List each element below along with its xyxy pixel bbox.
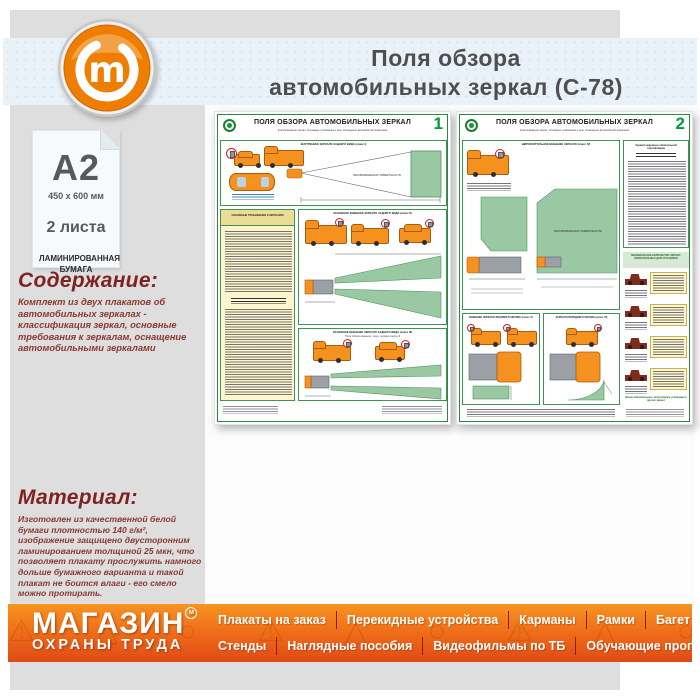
mirror-callout-icon [343,339,352,348]
content-section: Содержание: Комплект из двух плакатов об… [18,269,198,355]
menu-item-visual-aids[interactable]: Наглядные пособия [276,637,422,655]
mirror-callout-icon [401,340,410,349]
poster-2-thumbnail: ПОЛЯ ОБЗОРА АВТОМОБИЛЬНЫХ ЗЕРКАЛ Классиф… [456,111,693,425]
poster-emblem-icon [223,119,236,132]
wide-angle-diagram-left [465,195,529,307]
info-column: Зеркала наружные обязательной сертификац… [623,140,689,406]
store-logo-line2: ОХРАНЫ ТРУДА [32,637,197,653]
class6-heading: ЗЕРКАЛО ПЕРЕДНЕГО ОБЗОРА (класс VI) [546,316,617,319]
micro-text [625,354,647,362]
menu-item-training-programs[interactable]: Обучающие программы [575,637,692,655]
copyright-micro-text [382,406,442,414]
mirror-callout-icon [335,218,344,227]
class3-section: ОСНОВНОЕ ВНЕШНЕЕ ЗЕРКАЛО ЗАДНЕГО ВИДА (к… [298,328,447,401]
paper-format-card: А2 450 х 600 мм 2 листа ЛАМИНИРОВАННАЯ Б… [32,130,120,268]
menu-item-flip-devices[interactable]: Перекидные устройства [336,611,508,629]
footer-menu-row1: Плакаты на заказ Перекидные устройства К… [208,611,688,629]
poster-1-header: ПОЛЯ ОБЗОРА АВТОМОБИЛЬНЫХ ЗЕРКАЛ Классиф… [219,116,446,139]
min-mirrors-heading: МИНИМАЛЬНОЕ КОЛИЧЕСТВО ЗЕРКАЛ, ОБЯЗАТЕЛЬ… [623,252,689,268]
truck-icon [625,338,647,349]
sheet-count: 2 листа [33,219,119,237]
requirements-heading: ОСНОВНЫЕ ТРЕБОВАНИЯ К ЗЕРКАЛАМ [221,210,294,226]
wide-angle-diagram-right: ОБОЗРЕВАЕМАЯ ПОВЕРХНОСТЬ [533,187,619,307]
micro-text [625,322,647,330]
product-page: m Поля обзора автомобильных зеркал (С-78… [0,0,700,700]
menu-item-frames[interactable]: Рамки [586,611,645,629]
micro-caption [467,183,511,191]
side-view-zone-diagram [467,350,537,402]
footer-menu-row2: Стенды Наглядные пособия Видеофильмы по … [208,637,688,655]
surface-label: ОБОЗРЕВАЕМАЯ ПОВЕРХНОСТЬ [554,229,603,233]
mirror-rule-box [650,336,687,358]
class2-heading: ОСНОВНОЕ ВНЕШНЕЕ ЗЕРКАЛО ЗАДНЕГО ВИДА (к… [301,212,444,215]
trademark-icon: м [185,607,197,619]
class6-section: ЗЕРКАЛО ПЕРЕДНЕГО ОБЗОРА (класс VI) [543,313,620,405]
m-circle-logo-icon: m [57,18,157,118]
mirror-callout-icon [381,219,390,228]
page-title-line1: Поля обзора [200,44,692,73]
class1-section: ВНУТРЕННЕЕ ЗЕРКАЛО ЗАДНЕГО ВИДА (класс I… [220,140,447,206]
mirror-callout-icon [594,324,602,332]
content-text: Комплект из двух плакатов об автомобильн… [18,297,198,355]
class5-heading: ВНЕШНЕЕ ЗЕРКАЛО БОКОВОГО ОБЗОРА (класс V… [465,316,537,319]
truck-illustration [471,331,501,345]
car-top-view [229,173,275,191]
content-heading: Содержание: [18,269,198,293]
micro-subheading [231,298,286,304]
class3-note: Поля обзора меньше, чем у зеркал класса … [301,335,444,338]
poster-2-number: 2 [676,114,685,134]
front-view-zone-diagram [548,350,617,402]
brand-logo[interactable]: m [57,18,157,118]
micro-text [225,231,292,293]
menu-item-pockets[interactable]: Карманы [508,611,585,629]
store-logo-line1: МАГАЗИНм [32,609,197,639]
micro-text [625,386,647,394]
material-heading: Материал: [18,486,206,510]
class3-heading: ОСНОВНОЕ ВНЕШНЕЕ ЗЕРКАЛО ЗАДНЕГО ВИДА (к… [301,331,444,334]
micro-text [628,161,686,245]
certification-box: Зеркала наружные обязательной сертификац… [623,140,689,248]
sedan-icon [625,274,647,285]
mirror-callout-icon [503,324,511,332]
class5-section: ВНЕШНЕЕ ЗЕРКАЛО БОКОВОГО ОБЗОРА (класс V… [462,313,540,405]
truck-illustration [305,225,347,244]
menu-item-baguette[interactable]: Багет [645,611,692,629]
material-section: Материал: Изготовлен из качественной бел… [18,486,206,599]
requirements-column: ОСНОВНЫЕ ТРЕБОВАНИЯ К ЗЕРКАЛАМ [220,209,295,401]
mirror-rule-box [650,304,687,326]
minivan-illustration [399,228,431,243]
class1-heading: ВНУТРЕННЕЕ ЗЕРКАЛО ЗАДНЕГО ВИДА (класс I… [223,143,444,146]
micro-caption [232,194,274,201]
paper-fold-corner-icon [100,130,120,150]
mirror-rule-box [650,368,687,390]
field-of-view-diagram-class1: ОБОЗРЕВАЕМАЯ ПОВЕРХНОСТЬ [279,149,444,203]
micro-text [625,290,647,298]
mirror-callout-icon [226,148,237,159]
copyright-micro-text [626,409,684,417]
paper-format: А2 [33,147,119,189]
poster-2-title: ПОЛЯ ОБЗОРА АВТОМОБИЛЬНЫХ ЗЕРКАЛ [481,119,668,126]
footer-menu: Плакаты на заказ Перекидные устройства К… [208,604,688,662]
certification-heading: Зеркала наружные обязательной сертификац… [626,144,686,151]
poster-2-subtitle: Классификация зеркал. Основные требовани… [481,129,668,132]
svg-text:m: m [88,50,126,91]
material-text: Изготовлен из качественной белой бумаги … [18,514,206,599]
menu-item-safety-videos[interactable]: Видеофильмы по ТБ [422,637,575,655]
class2-section: ОСНОВНОЕ ВНЕШНЕЕ ЗЕРКАЛО ЗАДНЕГО ВИДА (к… [298,209,447,325]
surface-label: ОБОЗРЕВАЕМАЯ ПОВЕРХНОСТЬ [353,173,402,177]
mirror-callout-icon [495,149,505,159]
page-title: Поля обзора автомобильных зеркал (С-78) [200,44,692,102]
car-illustration [234,154,260,166]
truck-illustration [566,331,598,345]
mirrors-note: Кроме обязательных, допускается установк… [623,396,689,402]
menu-item-posters-on-order[interactable]: Плакаты на заказ [208,611,336,629]
poster-emblem-icon [465,119,478,132]
page-title-line2: автомобильных зеркал (С-78) [200,73,692,102]
store-logo[interactable]: МАГАЗИНм ОХРАНЫ ТРУДА [32,609,197,653]
class4-section: ШИРОКОУГОЛЬНОЕ ВНЕШНЕЕ ЗЕРКАЛО (класс IV… [462,140,620,310]
field-of-view-diagram-class2 [303,252,444,322]
bus-icon [625,306,647,317]
micro-subheading [636,153,676,157]
copyright-micro-text [223,406,278,414]
minivan-illustration [375,346,405,360]
footer-bar: ⚠ △ ○ ⚠ △ ○ ⚠ △ ○ ⚠ △ ○ ⚠ МАГАЗИНм ОХРАН… [8,604,692,662]
poster-1-number: 1 [434,114,443,134]
poster-1-thumbnail: ПОЛЯ ОБЗОРА АВТОМОБИЛЬНЫХ ЗЕРКАЛ Классиф… [214,111,451,425]
field-of-view-diagram-class3 [303,364,444,400]
menu-item-stands[interactable]: Стенды [208,637,276,655]
micro-text [225,309,292,395]
caption-micro-text [467,409,615,417]
poster-1-title: ПОЛЯ ОБЗОРА АВТОМОБИЛЬНЫХ ЗЕРКАЛ [239,119,426,126]
poster-1-subtitle: Классификация зеркал. Основные требовани… [239,129,426,132]
dump-truck-icon [625,370,647,381]
mirror-callout-icon [425,219,434,228]
flatbed-truck-illustration [351,228,389,244]
paper-size: 450 х 600 мм [33,191,119,201]
mirror-rule-box [650,272,687,294]
poster-2-header: ПОЛЯ ОБЗОРА АВТОМОБИЛЬНЫХ ЗЕРКАЛ Классиф… [461,116,688,139]
class4-heading: ШИРОКОУГОЛЬНОЕ ВНЕШНЕЕ ЗЕРКАЛО (класс IV… [503,143,609,146]
truck-illustration [507,331,537,345]
mirror-callout-icon [467,324,475,332]
